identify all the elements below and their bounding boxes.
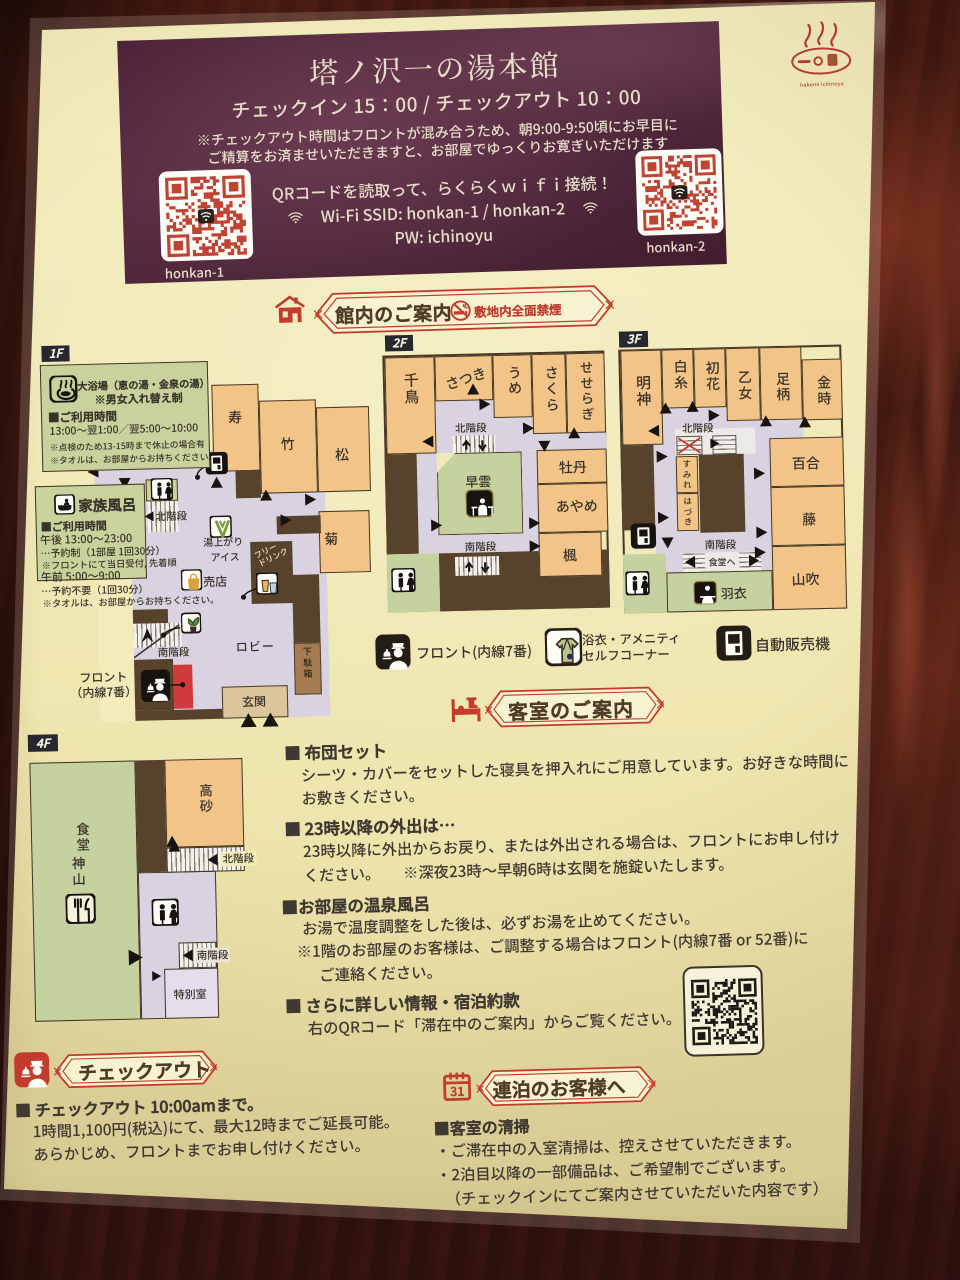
svg-text:hakone ichinoyu: hakone ichinoyu xyxy=(800,80,844,89)
